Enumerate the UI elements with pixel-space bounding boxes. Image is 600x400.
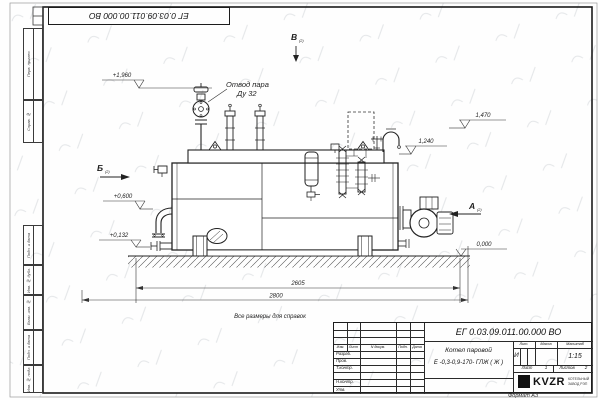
margin-box-podp-data-1: Подп. и дата [23, 225, 43, 265]
svg-text:+0,600: +0,600 [114, 194, 133, 200]
scale-value: 1:15 [557, 348, 593, 365]
drawing-sheet: Отвод пара Ду 32 [0, 0, 600, 400]
mass-label: Масса [535, 341, 557, 348]
doc-number: ЕГ 0.03.09.011.00.000 ВО [424, 323, 593, 341]
svg-text:0,000: 0,000 [476, 242, 492, 248]
sheet-value: 1 [539, 365, 553, 372]
col-podp: Подп. [396, 344, 410, 351]
svg-text:+1,960: +1,960 [113, 73, 132, 79]
margin-label: Инв. № дубл. [24, 266, 33, 294]
svg-text:Б: Б [97, 163, 103, 173]
top-stamp: ЕГ 0.03.09.011.00.000 ВО [48, 7, 230, 25]
svg-text:2800: 2800 [268, 294, 283, 300]
margin-label: Перв. примен. [24, 29, 33, 99]
format-note: Формат А3 [468, 393, 578, 399]
svg-text:2605: 2605 [290, 281, 305, 287]
margin-label: Взам. инв. № [24, 296, 33, 329]
col-list: Лист [347, 344, 360, 351]
col-date: Дата [410, 344, 424, 351]
role-tkontr: Т.контр. [334, 365, 362, 372]
top-stamp-number: ЕГ 0.03.09.011.00.000 ВО [89, 11, 189, 21]
role-razrab: Разраб. [334, 351, 362, 358]
margin-box-inv-dubl: Инв. № дубл. [23, 265, 43, 295]
margin-label: Подп. и дата [24, 226, 33, 264]
margin-box-sprav: Справ. № [23, 100, 43, 143]
reference-note: Все размеры для справок [234, 314, 307, 320]
boiler-body [172, 150, 398, 250]
svg-text:+0,132: +0,132 [110, 233, 129, 239]
company-logo: KVZR КОТЕЛЬНЫЙ ЗАВОД РЭП [518, 375, 589, 388]
svg-text:(2): (2) [299, 39, 304, 43]
role-prov: Пров. [334, 358, 362, 365]
product-code: Е -0,3-0,9-170- ГЛЖ ( Ж ) [424, 357, 513, 369]
svg-text:(2): (2) [105, 170, 110, 174]
svg-text:В: В [291, 32, 297, 42]
svg-text:1,240: 1,240 [418, 139, 434, 145]
margin-box-perv-primen: Перв. примен. [23, 28, 43, 100]
margin-box-podp-data-2: Подп. и дата [23, 330, 43, 365]
product-name: Котел паровой [424, 345, 513, 357]
col-izm: Изм. [334, 344, 347, 351]
callout-line1: Отвод пара [226, 80, 269, 89]
role-nkontr: Н.контр. [334, 379, 362, 386]
callout-line2: Ду 32 [236, 89, 257, 98]
margin-label: Инв. № подл. [24, 366, 33, 392]
col-docnum: N докум. [360, 344, 396, 351]
margin-box-vzam-inv: Взам. инв. № [23, 295, 43, 330]
ground-line [128, 256, 470, 268]
svg-text:(2): (2) [477, 208, 482, 212]
title-block: ЕГ 0.03.09.011.00.000 ВО Изм. Лист N док… [333, 322, 592, 393]
logo-text: KVZR [533, 376, 565, 388]
sheets-label: Листов [553, 365, 581, 372]
role-utv: Утв. [334, 386, 362, 394]
svg-text:А: А [468, 201, 475, 211]
lit-value: И [513, 348, 520, 365]
margin-label: Подп. и дата [24, 331, 33, 364]
svg-text:1,470: 1,470 [475, 113, 491, 119]
logo-subtext: КОТЕЛЬНЫЙ ЗАВОД РЭП [568, 377, 589, 386]
margin-box-inv-podl: Инв. № подл. [23, 365, 43, 393]
lit-label: Лит. [513, 341, 535, 348]
sheet-label: Лист [513, 365, 541, 372]
sheets-value: 2 [579, 365, 593, 372]
logo-mark [518, 375, 530, 388]
margin-label: Справ. № [24, 101, 33, 142]
scale-label: Масштаб [557, 341, 593, 348]
